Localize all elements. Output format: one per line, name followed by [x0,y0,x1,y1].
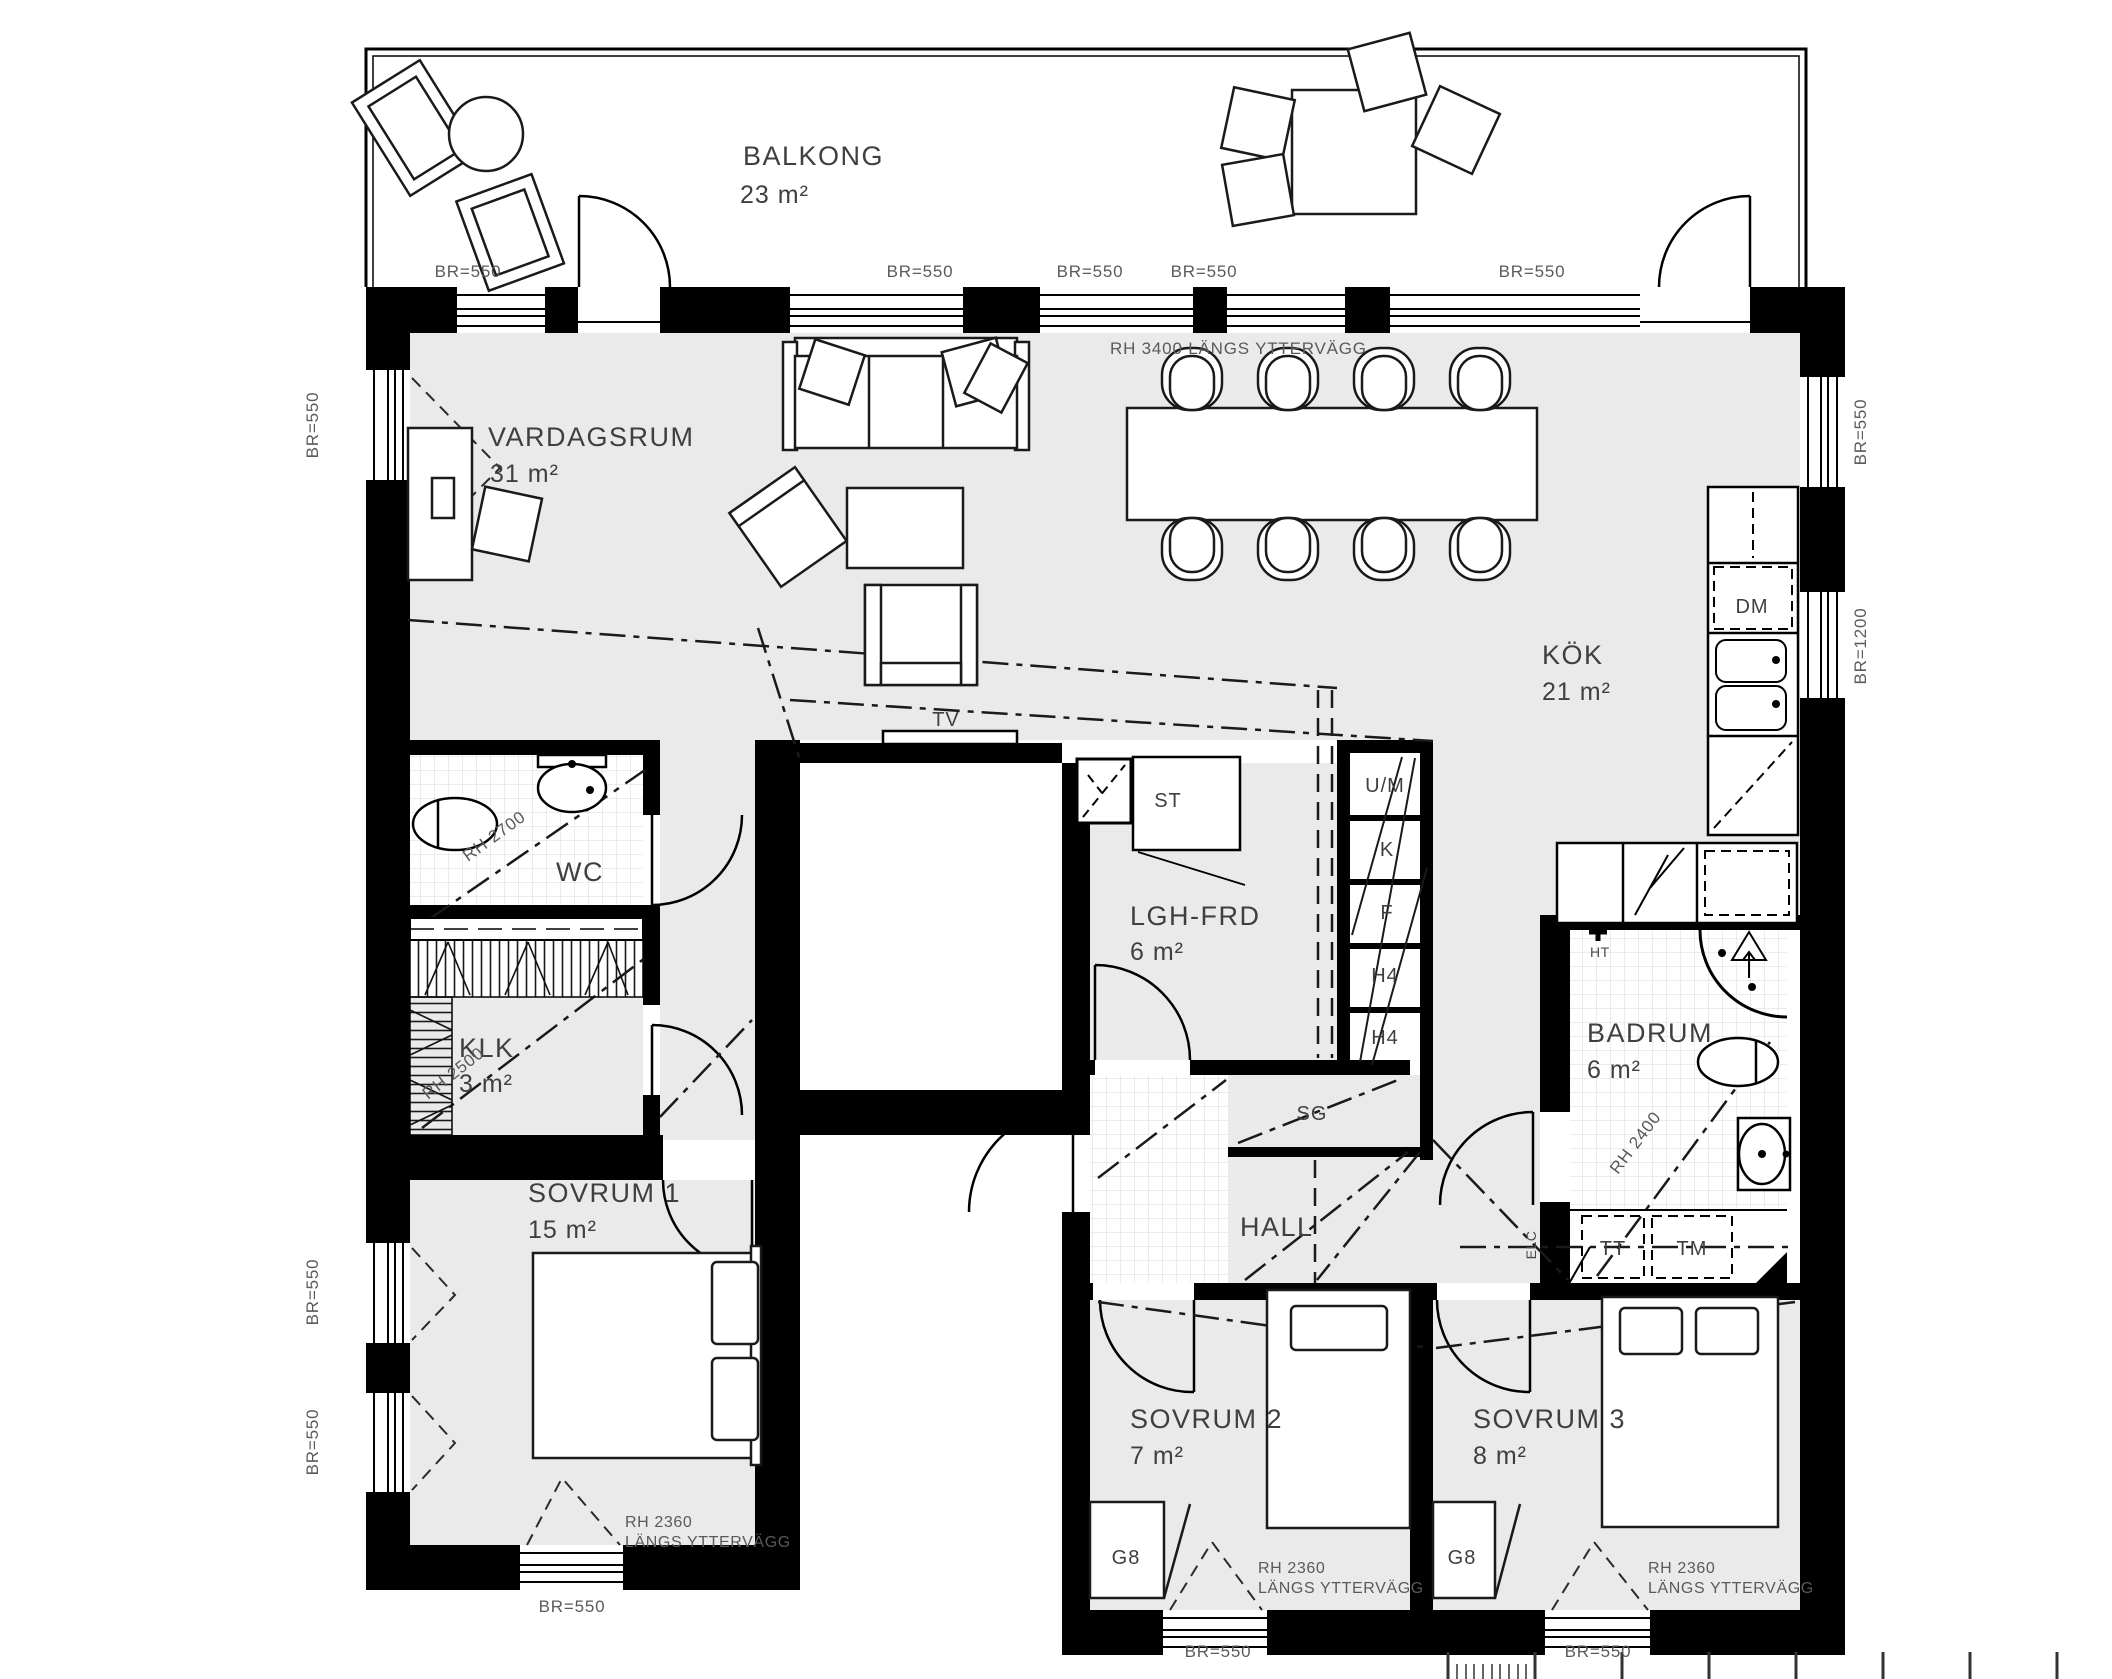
sink-basin [1716,686,1786,730]
tv-unit [883,731,1017,744]
annotation-br550-right: BR=550 [1851,399,1870,466]
label-g8-sovrum2: G8 [1112,1547,1141,1569]
annotation-langs-sovrum1: LÄNGS YTTERVÄGG [625,1533,791,1551]
bed-sovrum1 [533,1246,761,1465]
room-label-sovrum3: SOVRUM 3 [1473,1404,1626,1434]
label-tm: TM [1677,1238,1708,1260]
room-label-badrum: BADRUM [1587,1018,1713,1048]
label-tv: TV [932,709,960,731]
room-area-vardagsrum: 31 m² [490,460,559,488]
annotation-br1200-right: BR=1200 [1851,608,1870,685]
reading-chair [865,585,977,685]
balcony-furniture [352,33,1500,291]
room-area-kok: 21 m² [1542,678,1611,706]
label-tt: TT [1600,1238,1626,1260]
annotation-langs-sovrum2: LÄNGS YTTERVÄGG [1258,1579,1424,1597]
annotation-rh2360-sovrum1: RH 2360 [625,1514,692,1531]
room-area-lghfrd: 6 m² [1130,938,1184,966]
label-dm: DM [1735,596,1768,618]
label-um: U/M [1365,775,1405,797]
balcony-door-right [1659,196,1750,287]
label-st: ST [1154,790,1182,812]
annotation-br550-top1: BR=550 [435,262,502,281]
room-label-wc: WC [556,857,604,887]
label-kyl: K [1380,839,1394,861]
label-g8-sovrum3: G8 [1448,1547,1477,1569]
annotation-br550-left1: BR=550 [303,392,322,459]
st-cabinet [1133,757,1240,850]
annotation-br550-top3: BR=550 [1057,262,1124,281]
annotation-br550-bottom2: BR=550 [1185,1642,1252,1661]
label-elc: ELC [1523,1231,1539,1260]
room-label-vardagsrum: VARDAGSRUM [488,422,695,452]
annotation-br550-bottom1: BR=550 [539,1597,606,1616]
room-area-badrum: 6 m² [1587,1056,1641,1084]
annotation-rh2360-sovrum3: RH 2360 [1648,1560,1715,1577]
room-label-kok: KÖK [1542,640,1604,670]
annotation-br550-bottom3: BR=550 [1565,1642,1632,1661]
scale-bar [1448,1652,2057,1679]
annotation-rh2360-sovrum2: RH 2360 [1258,1560,1325,1577]
balcony-outline [366,49,1806,287]
annotation-rh3400: RH 3400 LÄNGS YTTERVÄGG [1110,339,1367,358]
room-label-sovrum1: SOVRUM 1 [528,1178,681,1208]
bed-sovrum2 [1267,1290,1410,1528]
label-sg: SG [1297,1103,1328,1125]
room-label-balkong: BALKONG [743,141,884,171]
bed-sovrum3 [1602,1297,1778,1527]
room-label-sovrum2: SOVRUM 2 [1130,1404,1283,1434]
room-label-hall: HALL [1240,1212,1314,1242]
annotation-br550-left3: BR=550 [303,1409,322,1476]
label-h4-lower: H4 [1371,1027,1399,1049]
room-area-sovrum1: 15 m² [528,1216,597,1244]
room-label-lghfrd: LGH-FRD [1130,901,1261,931]
annotation-br550-top5: BR=550 [1499,262,1566,281]
balcony-door-left [579,196,670,287]
annotation-br550-left2: BR=550 [303,1259,322,1326]
annotation-br550-top4: BR=550 [1171,262,1238,281]
room-area-sovrum2: 7 m² [1130,1442,1184,1470]
annotation-langs-sovrum3: LÄNGS YTTERVÄGG [1648,1579,1814,1597]
floorplan-page: BALKONG 23 m² VARDAGSRUM 31 m² KÖK 21 m²… [0,0,2112,1679]
label-frys: F [1380,902,1393,924]
label-h4-upper: H4 [1371,965,1399,987]
room-area-balkong: 23 m² [740,181,809,209]
floorplan-drawing: BALKONG 23 m² VARDAGSRUM 31 m² KÖK 21 m²… [0,0,2112,1679]
room-area-sovrum3: 8 m² [1473,1442,1527,1470]
coffee-table [847,488,963,568]
sofa [783,338,1029,450]
annotation-br550-top2: BR=550 [887,262,954,281]
label-ht: HT [1590,944,1610,960]
